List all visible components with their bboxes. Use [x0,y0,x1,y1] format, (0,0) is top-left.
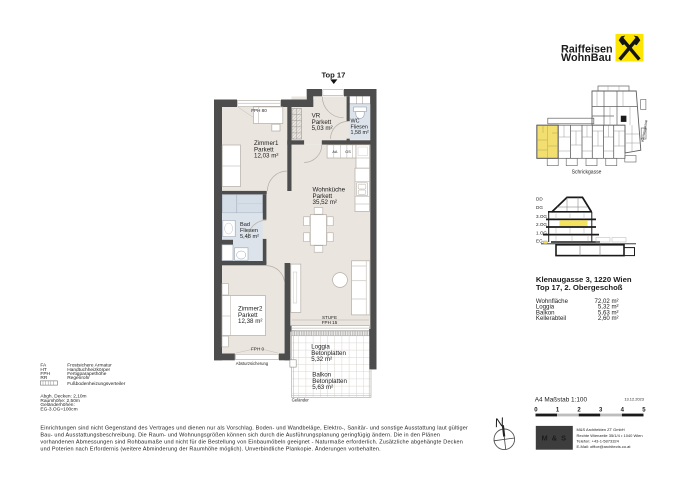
svg-text:35,52 m²: 35,52 m² [313,199,337,206]
svg-text:AA: AA [332,150,338,154]
svg-text:GS: GS [345,150,351,154]
svg-text:Absturzsicherung: Absturzsicherung [236,361,269,366]
svg-text:Regenrohr: Regenrohr [67,375,90,381]
svg-text:5,48 m²: 5,48 m² [240,234,259,240]
svg-text:FPH 80: FPH 80 [251,108,267,113]
svg-text:Bau- und Ausstattungsbeschreib: Bau- und Ausstattungsbeschreibung. Die R… [40,432,440,438]
svg-text:und Poterien nach Erfordernis: und Poterien nach Erfordernis (weitere A… [40,446,381,453]
svg-text:Geländer: Geländer [292,397,310,402]
svg-text:Telefon: +43-1-5873324: Telefon: +43-1-5873324 [577,438,620,443]
svg-text:5,32 m²: 5,32 m² [311,356,332,363]
svg-text:M&S Architekten ZT GmbH: M&S Architekten ZT GmbH [577,427,625,432]
svg-text:Top 17: Top 17 [321,70,345,79]
svg-text:DG: DG [536,205,543,210]
svg-text:RR: RR [40,375,47,381]
svg-text:1,58 m²: 1,58 m² [351,130,369,136]
svg-text:M & S: M & S [542,434,568,443]
svg-text:5,63 m²: 5,63 m² [312,384,333,391]
svg-text:EG-3.OG=100cm: EG-3.OG=100cm [40,406,77,412]
svg-text:12,38 m²: 12,38 m² [238,318,262,325]
svg-text:A4 Maßstab 1:100: A4 Maßstab 1:100 [535,397,588,404]
svg-text:DD: DD [536,196,543,201]
svg-text:Fußbodenheizungsverteiler: Fußbodenheizungsverteiler [67,381,126,387]
svg-text:FPH 15: FPH 15 [322,320,338,325]
svg-text:12,03 m²: 12,03 m² [254,153,278,160]
svg-text:3.OG: 3.OG [536,214,547,219]
svg-text:5,03 m²: 5,03 m² [312,125,333,132]
svg-text:Rechte Wienzeile 35/1/4 • 1040: Rechte Wienzeile 35/1/4 • 1040 Wien [577,433,643,438]
svg-text:2,60 m²: 2,60 m² [598,315,619,322]
svg-text:FPH 0: FPH 0 [251,346,264,351]
svg-text:vorhandenen Abmessungen sind R: vorhandenen Abmessungen sind Rohbaumaße … [40,440,463,446]
svg-text:2.OG: 2.OG [536,222,547,227]
svg-text:WohnBau: WohnBau [561,52,611,64]
svg-text:Einrichtungen sind nicht Gegen: Einrichtungen sind nicht Gegenstand des … [40,425,468,431]
svg-text:Schrickgasse: Schrickgasse [572,170,602,176]
svg-text:13.12.2023: 13.12.2023 [624,397,643,402]
svg-text:E-Mail: office@architects.co.a: E-Mail: office@architects.co.at [577,444,632,449]
svg-text:Top 17, 2. Obergeschoß: Top 17, 2. Obergeschoß [536,283,623,292]
svg-text:EG: EG [536,239,543,244]
svg-text:Kellerabteil: Kellerabteil [536,315,566,322]
